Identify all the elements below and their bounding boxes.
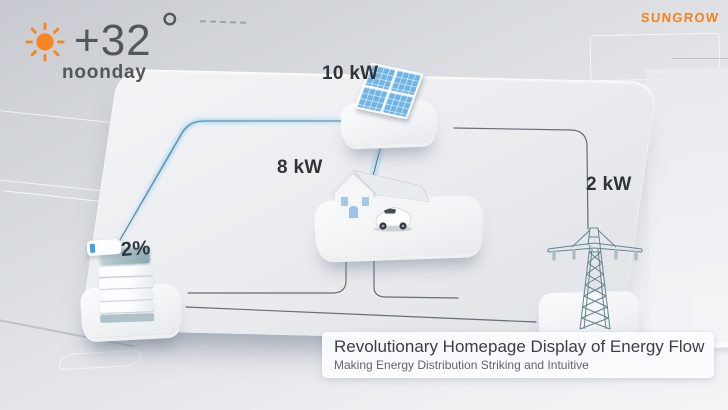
brand-logo: SUNGROW (640, 10, 719, 25)
sun-icon (22, 18, 68, 64)
car-hub (402, 225, 405, 228)
floor-tile-dashed-seam (200, 20, 246, 24)
temperature-value: +32 (74, 19, 152, 63)
weather-widget: +32 ° noonday (22, 18, 179, 84)
banner-title: Revolutionary Homepage Display of Energy… (334, 337, 702, 357)
battery-module (98, 265, 152, 277)
door (349, 206, 358, 218)
window (341, 197, 348, 206)
solar-output-label: 10 kW (322, 63, 378, 85)
battery-module (99, 289, 153, 301)
home-load-label: 8 kW (277, 157, 323, 179)
banner-subtitle: Making Energy Distribution Striking and … (334, 358, 702, 372)
house-3d (310, 150, 485, 255)
floor-tile (590, 33, 721, 82)
scene: 10 kW 8 kW (0, 0, 728, 410)
battery-soc-label: 2% (120, 237, 151, 262)
solar-cell (390, 70, 421, 95)
floor-tile (646, 67, 728, 343)
solar-cell (382, 92, 413, 117)
battery-module (100, 301, 154, 313)
battery-module (99, 277, 153, 289)
time-of-day-label: noonday (62, 62, 179, 84)
battery-level-icon (87, 239, 122, 256)
degree-symbol: ° (161, 6, 179, 52)
grid-feed-label: 2 kW (586, 174, 632, 196)
battery-level-fill (90, 244, 96, 253)
caption-banner: Revolutionary Homepage Display of Energy… (322, 332, 714, 378)
power-pylon-3d (534, 221, 649, 333)
floor-tile (56, 350, 144, 371)
floor-tile (672, 58, 728, 80)
window (362, 197, 369, 206)
car-hub (382, 225, 385, 228)
